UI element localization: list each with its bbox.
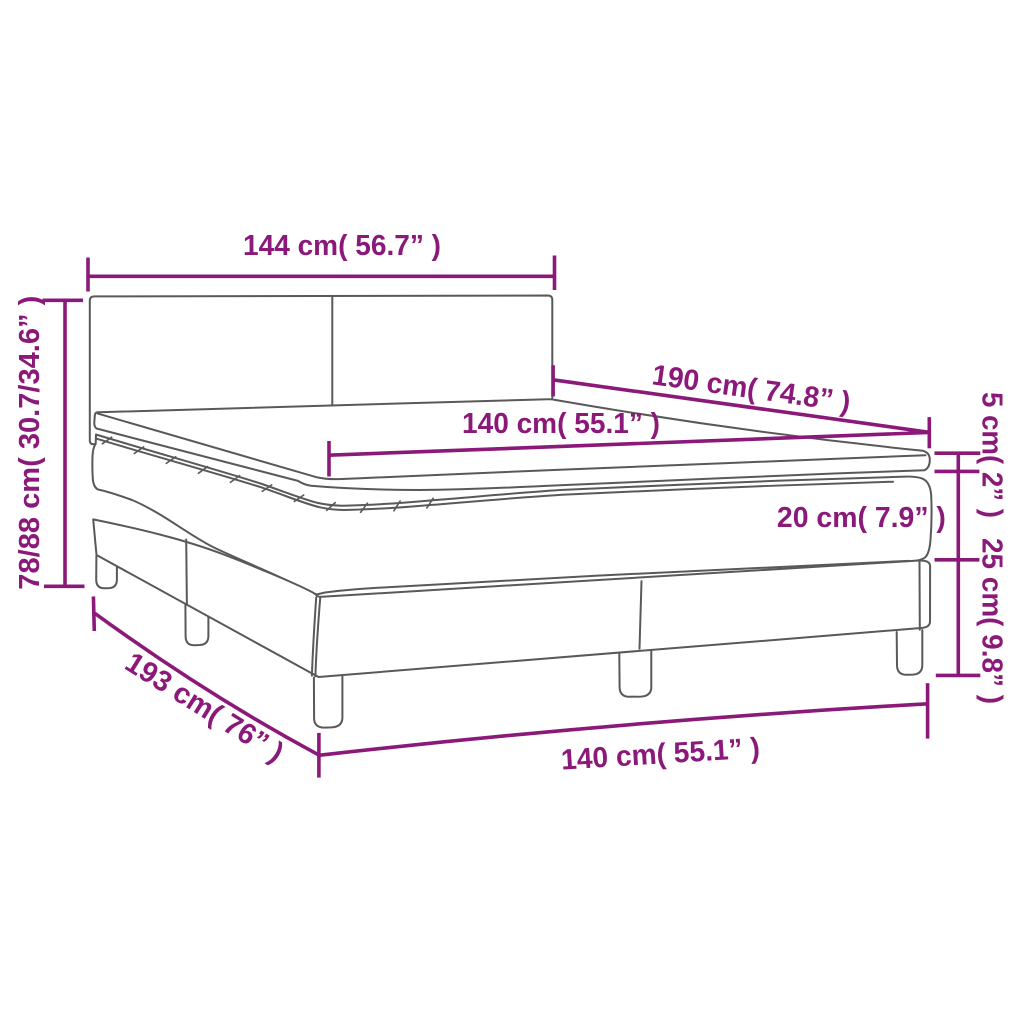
svg-text:25 cm( 9.8” ): 25 cm( 9.8” ) bbox=[976, 538, 1008, 704]
svg-text:5 cm( 2” ): 5 cm( 2” ) bbox=[976, 392, 1008, 518]
svg-text:144 cm( 56.7” ): 144 cm( 56.7” ) bbox=[243, 230, 441, 262]
svg-text:78/88 cm( 30.7/34.6” ): 78/88 cm( 30.7/34.6” ) bbox=[14, 296, 46, 590]
svg-text:20 cm( 7.9” ): 20 cm( 7.9” ) bbox=[777, 502, 946, 534]
svg-text:140 cm( 55.1” ): 140 cm( 55.1” ) bbox=[462, 408, 660, 440]
